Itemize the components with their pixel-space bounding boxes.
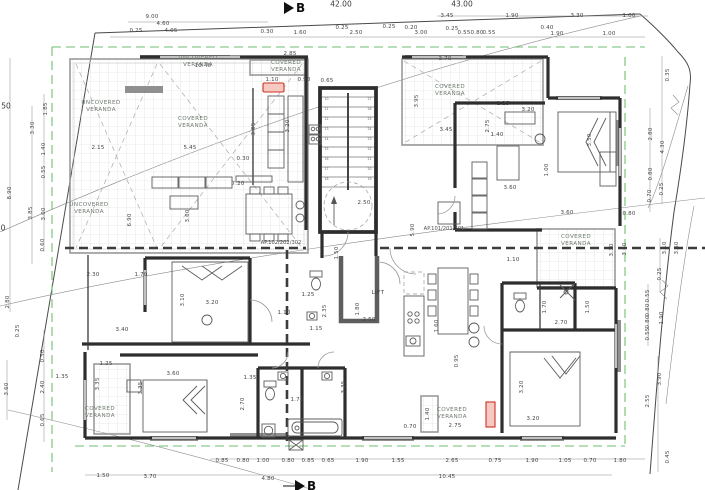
- dimension-label: 0.35: [665, 68, 671, 81]
- level-label: 42.00: [330, 0, 351, 9]
- dimension-label: 3.20: [519, 380, 525, 393]
- dimension-label: 3.35: [95, 377, 101, 390]
- toilet: [514, 293, 526, 312]
- kitchen-2: [404, 272, 424, 356]
- room-label: COVERED VERANDA: [178, 116, 208, 131]
- dimension-label: 2.55: [645, 394, 651, 407]
- dimension-label: 3.60: [4, 382, 10, 395]
- dimension-label: 2.30: [86, 272, 99, 278]
- dimension-label: 3.60: [560, 210, 573, 216]
- dimension-label: 3.30: [30, 121, 36, 134]
- dimension-label: 4.30: [660, 140, 666, 153]
- dimension-label: 7.20: [231, 181, 244, 187]
- dimension-label: 3.45: [440, 13, 453, 19]
- dimension-label: 3.10: [180, 293, 186, 306]
- dimension-label: 2.70: [554, 320, 567, 326]
- stair-tread-number: 20: [367, 167, 371, 171]
- dimension-label: 1.85: [43, 102, 49, 115]
- dimension-label: 2.65: [445, 458, 458, 464]
- dimension-label: 3.00: [414, 30, 427, 36]
- dimension-label: 3.40: [115, 327, 128, 333]
- stair-tread-number: 17: [324, 167, 328, 171]
- dimension-label: 1.60: [293, 30, 306, 36]
- dimension-label: 0.25: [659, 182, 665, 195]
- sink: [322, 372, 332, 380]
- dimension-label: 3.50: [587, 133, 593, 146]
- dimension-label: 3.35: [138, 381, 144, 394]
- dimension-label: 0.55: [645, 289, 651, 302]
- dimension-label: 2.75: [448, 423, 461, 429]
- dimension-label: 0.80: [236, 458, 249, 464]
- dimension-label: 2.40: [40, 380, 46, 393]
- dimension-label: 1.75: [290, 397, 303, 403]
- dimension-label: 0.50: [40, 349, 46, 362]
- toilet: [264, 381, 276, 400]
- dimension-label: 3.20: [285, 119, 291, 132]
- dimension-label: 8.90: [7, 186, 13, 199]
- dimension-label: 1.70: [542, 300, 548, 313]
- dimension-label: 2.35: [322, 304, 328, 317]
- dimension-label: 3.60: [166, 371, 179, 377]
- dimension-label: 1.00: [256, 458, 269, 464]
- apartment-label: AP.101/201/301: [424, 226, 465, 232]
- dimension-label: 1.70: [134, 272, 147, 278]
- dimension-label: 4.80: [261, 476, 274, 482]
- dimension-label: 1.10: [265, 77, 278, 83]
- dimension-label: 1.25: [496, 101, 509, 107]
- dimension-label: 1.00: [544, 163, 550, 176]
- stair-tread-number: 12: [324, 117, 328, 121]
- dimension-label: 3.85: [28, 206, 34, 219]
- dimension-label: 0.25: [15, 324, 21, 337]
- dimension-label: 0.85: [215, 458, 228, 464]
- dimension-label: 2.50: [349, 30, 362, 36]
- dimension-label: 0.70: [583, 458, 596, 464]
- dimension-label: 1.40: [490, 132, 503, 138]
- room-label: COVERED VERANDA: [435, 84, 465, 99]
- dimension-label: 2.50: [357, 200, 370, 206]
- dimension-label: 3.60: [503, 185, 516, 191]
- dimension-label: 3.20: [526, 416, 539, 422]
- stair-tread-number: 13: [324, 127, 328, 131]
- dimension-label: 1.00: [622, 13, 635, 19]
- dimension-label: 10.45: [439, 474, 456, 480]
- apartment-label: AP.102/202/302: [261, 240, 302, 246]
- dimension-label: 3.60: [674, 241, 680, 254]
- dimension-label: 0.25: [335, 25, 348, 31]
- dimension-label: 2.75: [485, 119, 491, 132]
- dimension-label: 3.30: [570, 13, 583, 19]
- dimension-label: 1.40: [425, 407, 431, 420]
- room-label: COVERED VERANDA: [561, 234, 591, 249]
- stair-tread-number: 11: [324, 107, 328, 111]
- floor-plan: B B 9.004.600.254.050.301.600.252.500.25…: [0, 0, 705, 490]
- stair-tread-number: 10: [324, 97, 328, 101]
- dimension-label: 1.15: [309, 326, 322, 332]
- room-label: COVERED VERANDA: [271, 60, 301, 75]
- dimension-label: 3.35: [341, 380, 347, 393]
- dimension-label: 1.90: [525, 458, 538, 464]
- dimension-label: 1.00: [602, 31, 615, 37]
- section-marker-b-bottom: B: [307, 479, 316, 490]
- dimension-label: 2.70: [240, 397, 246, 410]
- room-label: UNCOVERED VERANDA: [178, 55, 217, 70]
- dimension-label: 1.50: [96, 473, 109, 479]
- dimension-label: 0.25: [657, 267, 663, 280]
- dimension-label: 1.05: [558, 458, 571, 464]
- dimension-label: 0.65: [321, 458, 334, 464]
- dimension-label: 1.25: [99, 361, 112, 367]
- dimension-label: 0.65: [320, 78, 333, 84]
- dimension-label: 5.45: [183, 145, 196, 151]
- stair-tread-number: 18: [324, 177, 328, 181]
- dimension-label: 0.25: [382, 24, 395, 30]
- dimension-label: 3.05: [251, 122, 257, 135]
- dimension-label: 0.45: [665, 450, 671, 463]
- dimension-label: 1.50: [585, 300, 591, 313]
- dimension-label: 0.80: [648, 167, 654, 180]
- level-label: 0: [1, 224, 6, 233]
- dimension-label: 0.70: [647, 189, 653, 202]
- dimension-label: 1.10: [277, 310, 290, 316]
- dimension-label: 1.40: [41, 142, 47, 155]
- dimension-label: 5.90: [410, 223, 416, 236]
- section-marker-b-top: B: [296, 1, 305, 15]
- dimension-label: 3.00: [41, 207, 47, 220]
- dimension-label: 1.90: [505, 13, 518, 19]
- dimension-label: 1.35: [243, 375, 256, 381]
- dimension-label: 3.60: [185, 209, 191, 222]
- level-label: 50: [1, 102, 11, 111]
- stair-tread-number: 14: [324, 137, 328, 141]
- dimension-label: 2.80: [5, 295, 11, 308]
- dimension-label: 0.85: [301, 458, 314, 464]
- dimension-label: 3.70: [143, 474, 156, 480]
- dimension-label: 0.90: [297, 77, 310, 83]
- dimension-label: 0.55: [482, 30, 495, 36]
- sofa-2: [438, 162, 487, 229]
- dimension-label: 3.45: [439, 127, 452, 133]
- stair-tread-number: 25: [367, 117, 371, 121]
- dimension-label: 1.80: [355, 302, 361, 315]
- dimension-label: 4.60: [156, 21, 169, 27]
- dimension-label: 6.90: [127, 213, 133, 226]
- dimension-label: 0.25: [129, 28, 142, 34]
- dimension-label: 0.80: [281, 458, 294, 464]
- dimension-label: 3.95: [414, 94, 420, 107]
- stair-tread-number: 15: [324, 147, 328, 151]
- dimension-label: 1.50: [334, 246, 340, 259]
- floor-drain: [289, 440, 303, 450]
- room-label: UNCOVERED VERANDA: [81, 100, 120, 115]
- dimension-label: 1.90: [355, 458, 368, 464]
- dimension-label: 3.60: [622, 242, 628, 255]
- stair-tread-number: 27: [367, 97, 371, 101]
- dimension-label: 0.55: [645, 327, 651, 340]
- dimension-label: 1.10: [506, 257, 519, 263]
- dimension-label: 2.85: [283, 51, 296, 57]
- dimension-label: 2.15: [91, 145, 104, 151]
- dimension-label: 1.80: [613, 458, 626, 464]
- dimension-label: 0.30: [236, 156, 249, 162]
- dimension-label: 1.60: [434, 319, 440, 332]
- room-label: COVERED VERANDA: [85, 406, 115, 421]
- toilet: [310, 271, 322, 290]
- dimension-label: 3.10: [662, 241, 668, 254]
- dimension-label: 3.20: [521, 107, 534, 113]
- dimension-label: 2.80: [648, 127, 654, 140]
- dimension-label: 0.80: [622, 211, 635, 217]
- stair-tread-number: 19: [367, 177, 371, 181]
- dimension-label: 0.75: [488, 458, 501, 464]
- stair-tread-number: 16: [324, 157, 328, 161]
- stair-tread-number: 24: [367, 127, 371, 131]
- dimension-label: 3.10: [609, 243, 615, 256]
- lift-label: LIFT: [371, 290, 384, 296]
- dimension-label: 0.65: [40, 413, 46, 426]
- dimension-label: 0.30: [260, 29, 273, 35]
- stair-tread-number: 21: [367, 157, 371, 161]
- dimension-label: 9.00: [145, 14, 158, 20]
- dimension-label: 3.20: [205, 300, 218, 306]
- dimension-label: 3.70: [438, 56, 451, 62]
- dimension-label: 2.50: [362, 317, 375, 323]
- dimension-label: 0.60: [40, 238, 46, 251]
- dimension-label: 1.35: [55, 374, 68, 380]
- dimension-label: 0.95: [454, 354, 460, 367]
- dimension-label: 1.55: [391, 458, 404, 464]
- room-label: UNCOVERED VERANDA: [69, 202, 108, 217]
- dimension-label: 1.25: [301, 292, 314, 298]
- dimension-label: 3.90: [657, 372, 663, 385]
- dimension-label: 1.90: [659, 311, 665, 324]
- dimension-label: 0.55: [457, 30, 470, 36]
- dimension-label: 0.55: [41, 165, 47, 178]
- stair-tread-number: 26: [367, 107, 371, 111]
- sink: [307, 312, 317, 320]
- stair-tread-number: 23: [367, 137, 371, 141]
- dimension-label: 4.05: [164, 28, 177, 34]
- dimension-label: 1.90: [550, 31, 563, 37]
- room-label: COVERED VERANDA: [437, 407, 467, 422]
- stair-tread-number: 22: [367, 147, 371, 151]
- level-label: 43.00: [451, 0, 472, 9]
- dimension-label: 0.70: [403, 424, 416, 430]
- dining-table-2: [428, 268, 479, 347]
